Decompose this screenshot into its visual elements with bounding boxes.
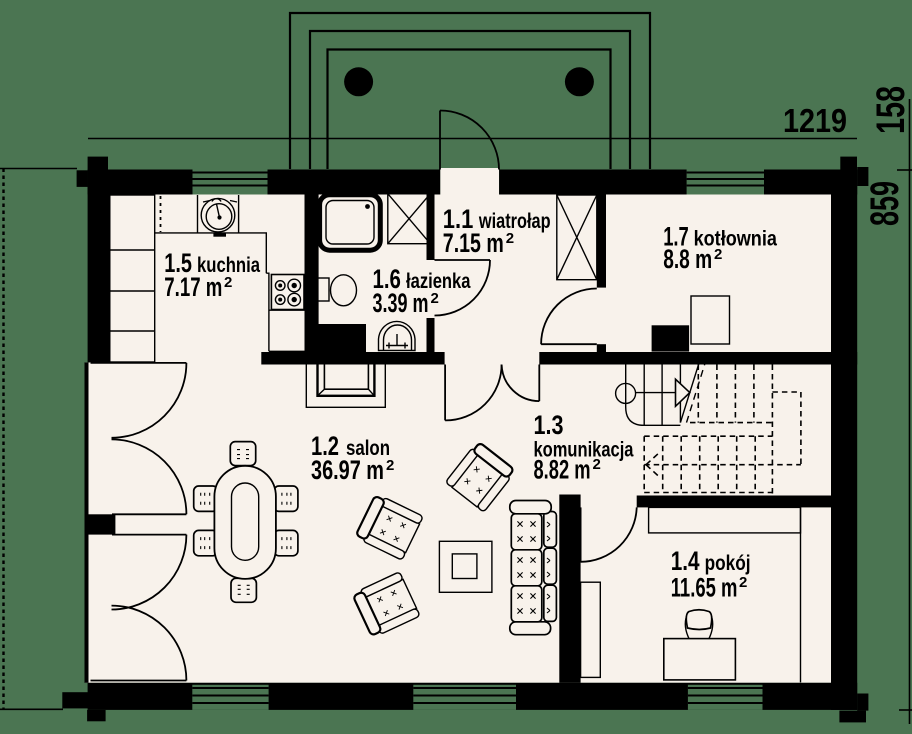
svg-text:1.3: 1.3	[534, 410, 564, 440]
svg-text:8.82 m: 8.82 m	[534, 455, 591, 485]
svg-text:2: 2	[431, 290, 439, 307]
svg-text:2: 2	[386, 457, 394, 474]
svg-text:859: 859	[863, 181, 907, 226]
svg-text:7.15 m: 7.15 m	[443, 228, 504, 258]
svg-text:2: 2	[506, 230, 514, 247]
svg-text:7.17 m: 7.17 m	[164, 272, 222, 302]
svg-text:8.8 m: 8.8 m	[663, 244, 712, 274]
svg-text:2: 2	[739, 574, 747, 591]
svg-text:158: 158	[869, 86, 912, 134]
svg-text:11.65 m: 11.65 m	[671, 573, 738, 603]
svg-text:3.39 m: 3.39 m	[373, 288, 429, 318]
svg-text:2: 2	[714, 246, 722, 263]
svg-text:36.97 m: 36.97 m	[311, 455, 384, 485]
svg-text:2: 2	[593, 456, 601, 473]
svg-text:1.4: 1.4	[671, 546, 700, 576]
svg-text:1219: 1219	[783, 102, 847, 139]
svg-text:2: 2	[224, 274, 232, 291]
